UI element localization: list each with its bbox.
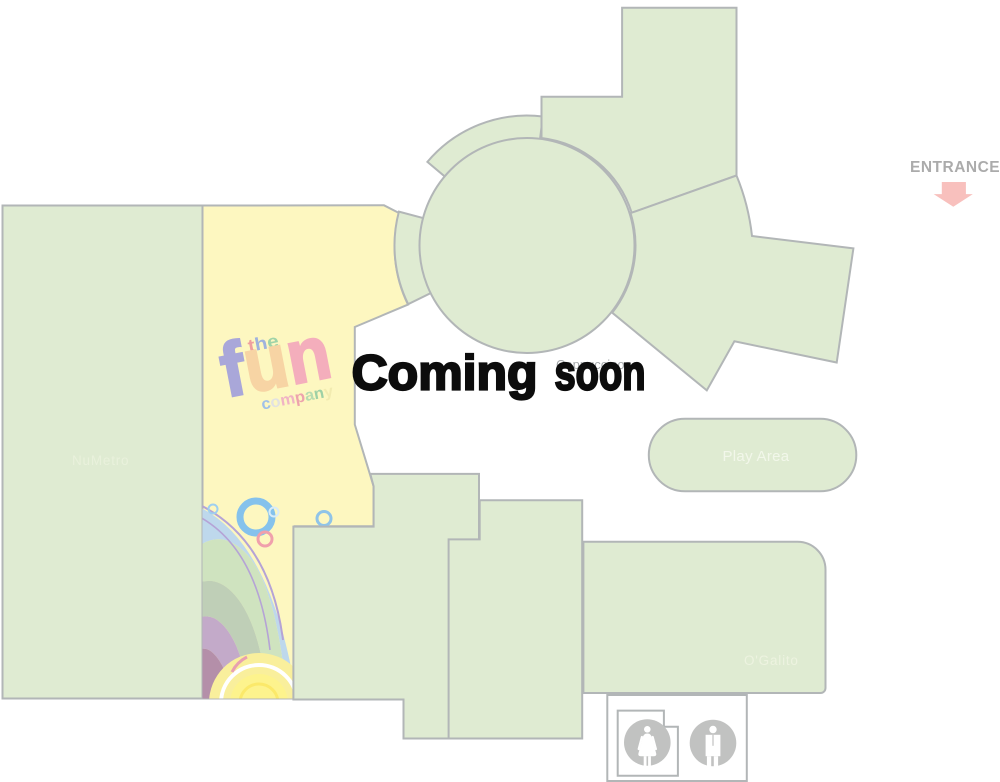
svg-text:Coming: Coming [352,347,538,401]
svg-text:Play Area: Play Area [723,448,790,465]
svg-text:O'Galito: O'Galito [744,653,799,668]
svg-text:NuMetro: NuMetro [72,453,129,468]
svg-text:ENTRANCE: ENTRANCE [910,159,1000,176]
svg-text:soon: soon [555,347,646,401]
